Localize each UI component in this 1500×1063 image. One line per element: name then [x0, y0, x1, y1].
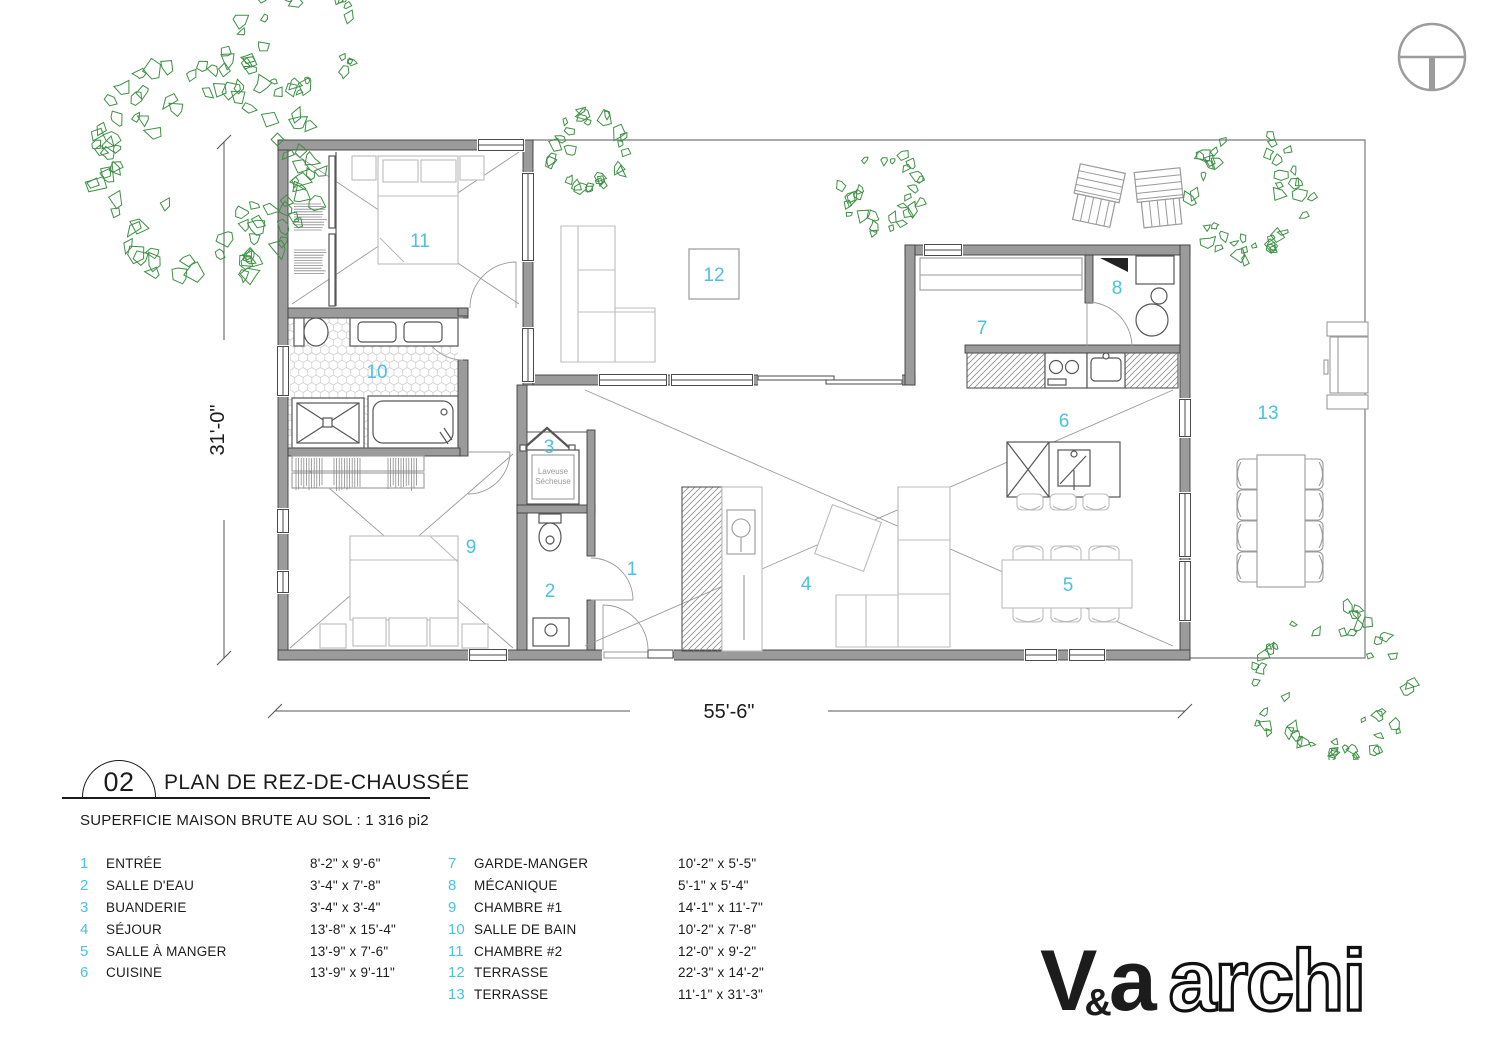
- legend-number: 2: [80, 877, 106, 894]
- legend-row: 6 CUISINE 13'-9" x 9'-11": [80, 962, 396, 984]
- lounge-chair: [1134, 168, 1186, 229]
- legend-number: 7: [448, 855, 474, 872]
- logo-a: a: [1109, 933, 1155, 1029]
- room-label-12: 12: [703, 265, 724, 286]
- window-glyph: [1024, 648, 1058, 662]
- window-glyph: [598, 373, 668, 387]
- terrace-dining-table: [1257, 455, 1305, 587]
- legend-number: 4: [80, 921, 106, 938]
- legend-row: 11 CHAMBRE #2 12'-0" x 9'-2": [448, 940, 764, 962]
- legend-number: 6: [80, 964, 106, 981]
- legend-row: 7 GARDE-MANGER 10'-2" x 5'-5": [448, 853, 764, 875]
- room-label-11: 11: [410, 231, 430, 252]
- legend-name: TERRASSE: [474, 965, 678, 980]
- legend-name: SÉJOUR: [106, 922, 310, 937]
- terrace13-furniture: [1237, 322, 1368, 587]
- legend-size: 5'-1" x 5'-4": [678, 878, 764, 893]
- legend-name: MÉCANIQUE: [474, 878, 678, 893]
- legend-name: BUANDERIE: [106, 900, 310, 915]
- tree: [1252, 599, 1420, 760]
- legend-size: 13'-9" x 7'-6": [310, 944, 396, 959]
- chair: [1017, 494, 1043, 510]
- legend-name: ENTRÉE: [106, 856, 310, 871]
- legend-name: TERRASSE: [474, 987, 678, 1002]
- kitchen: [967, 353, 1178, 497]
- legend-size: 10'-2" x 5'-5": [678, 856, 764, 871]
- sliding-door: [758, 373, 902, 387]
- chair: [1083, 494, 1109, 510]
- room-label-10: 10: [366, 362, 387, 383]
- legend-size: 8'-2" x 9'-6": [310, 856, 396, 871]
- legend-row: 1 ENTRÉE 8'-2" x 9'-6": [80, 853, 396, 875]
- logo: V&aarchi: [1040, 938, 1364, 1024]
- legend-size: 3'-4" x 3'-4": [310, 900, 396, 915]
- legend-number: 13: [448, 986, 474, 1003]
- living-room-furniture: [815, 487, 950, 647]
- floor-plan-drawing: 55'-6" 31'-0": [0, 0, 1500, 760]
- legend-number: 5: [80, 943, 106, 960]
- tree: [546, 107, 631, 194]
- chair: [1050, 494, 1076, 510]
- tree: [837, 151, 927, 238]
- legend-size: 11'-1" x 31'-3": [678, 987, 764, 1002]
- legend-row: 3 BUANDERIE 3'-4" x 3'-4": [80, 897, 396, 919]
- legend-number: 8: [448, 877, 474, 894]
- legend-name: CHAMBRE #1: [474, 900, 678, 915]
- architectural-sheet: 55'-6" 31'-0": [0, 0, 1500, 1063]
- pantry-mechanical: [920, 256, 1174, 336]
- hanger-lines: [294, 250, 326, 273]
- legend-number: 10: [448, 921, 474, 938]
- legend-size: 14'-1" x 11'-7": [678, 900, 764, 915]
- legend-size: 13'-9" x 9'-11": [310, 965, 396, 980]
- title-underline: [62, 797, 430, 799]
- legend-row: 4 SÉJOUR 13'-8" x 15'-4": [80, 918, 396, 940]
- north-arrow-icon: [1399, 24, 1465, 90]
- lounge-chair: [1069, 164, 1126, 228]
- svg-text:Laveuse: Laveuse: [538, 467, 569, 476]
- legend-row: 9 CHAMBRE #1 14'-1" x 11'-7": [448, 897, 764, 919]
- legend-name: CHAMBRE #2: [474, 944, 678, 959]
- legend-size: 13'-8" x 15'-4": [310, 922, 396, 937]
- room-label-8: 8: [1112, 278, 1123, 299]
- logo-ampersand: &: [1084, 982, 1111, 1024]
- room-label-5: 5: [1063, 575, 1074, 596]
- legend-name: SALLE D'EAU: [106, 878, 310, 893]
- legend-row: 13 TERRASSE 11'-1" x 31'-3": [448, 984, 764, 1006]
- legend-name: GARDE-MANGER: [474, 856, 678, 871]
- window-glyph: [521, 327, 535, 383]
- legend-size: 3'-4" x 7'-8": [310, 878, 396, 893]
- laundry-powder-room: Laveuse Sécheuse: [520, 428, 579, 646]
- window-glyph: [1068, 648, 1106, 662]
- room-label-4: 4: [801, 574, 812, 595]
- room-label-6: 6: [1059, 411, 1070, 432]
- window-glyph: [276, 345, 290, 397]
- legend-row: 2 SALLE D'EAU 3'-4" x 7'-8": [80, 875, 396, 897]
- window-glyph: [521, 172, 535, 262]
- window-glyph: [468, 648, 508, 662]
- legend-row: 8 MÉCANIQUE 5'-1" x 5'-4": [448, 875, 764, 897]
- legend-left: 1 ENTRÉE 8'-2" x 9'-6" 2 SALLE D'EAU 3'-…: [80, 853, 396, 984]
- legend-name: SALLE DE BAIN: [474, 922, 678, 937]
- legend-size: 22'-3" x 14'-2": [678, 965, 764, 980]
- legend-row: 12 TERRASSE 22'-3" x 14'-2": [448, 962, 764, 984]
- room-label-13: 13: [1257, 403, 1278, 424]
- room-label-2: 2: [545, 581, 556, 602]
- svg-text:Sécheuse: Sécheuse: [535, 477, 571, 486]
- legend-row: 10 SALLE DE BAIN 10'-2" x 7'-8": [448, 918, 764, 940]
- window-glyph: [1178, 560, 1192, 622]
- room-label-7: 7: [977, 318, 988, 339]
- legend-right: 7 GARDE-MANGER 10'-2" x 5'-5" 8 MÉCANIQU…: [448, 853, 764, 1006]
- sheet-number: 02: [103, 769, 134, 798]
- logo-archi: archi: [1169, 933, 1365, 1029]
- legend-size: 10'-2" x 7'-8": [678, 922, 764, 937]
- window-glyph: [1178, 492, 1192, 558]
- dimension-height: 31'-0": [207, 405, 229, 456]
- window-glyph: [923, 243, 963, 257]
- room-label-1: 1: [627, 559, 638, 580]
- legend-number: 3: [80, 899, 106, 916]
- legend-number: 12: [448, 964, 474, 981]
- window-glyph: [1178, 398, 1192, 438]
- area-note: SUPERFICIE MAISON BRUTE AU SOL : 1 316 p…: [80, 812, 429, 829]
- sheet-title: PLAN DE REZ-DE-CHAUSSÉE: [164, 771, 470, 795]
- title-number-bubble: 02: [82, 760, 156, 798]
- window-glyph: [670, 373, 754, 387]
- window-glyph: [477, 138, 525, 152]
- legend-number: 9: [448, 899, 474, 916]
- dimension-width: 55'-6": [704, 701, 755, 723]
- fireplace-column: [682, 487, 762, 651]
- legend-name: CUISINE: [106, 965, 310, 980]
- window-glyph: [276, 570, 290, 594]
- tree: [233, 0, 357, 96]
- window-glyph: [276, 508, 290, 534]
- room-label-3: 3: [544, 437, 555, 458]
- legend-size: 12'-0" x 9'-2": [678, 944, 764, 959]
- legend-number: 1: [80, 855, 106, 872]
- legend-row: 5 SALLE À MANGER 13'-9" x 7'-6": [80, 940, 396, 962]
- bedroom1-furniture: [292, 456, 488, 648]
- room-label-9: 9: [466, 537, 477, 558]
- legend-number: 11: [448, 943, 474, 960]
- legend-name: SALLE À MANGER: [106, 944, 310, 959]
- tree: [1183, 132, 1317, 266]
- bedroom2-furniture: [329, 152, 484, 306]
